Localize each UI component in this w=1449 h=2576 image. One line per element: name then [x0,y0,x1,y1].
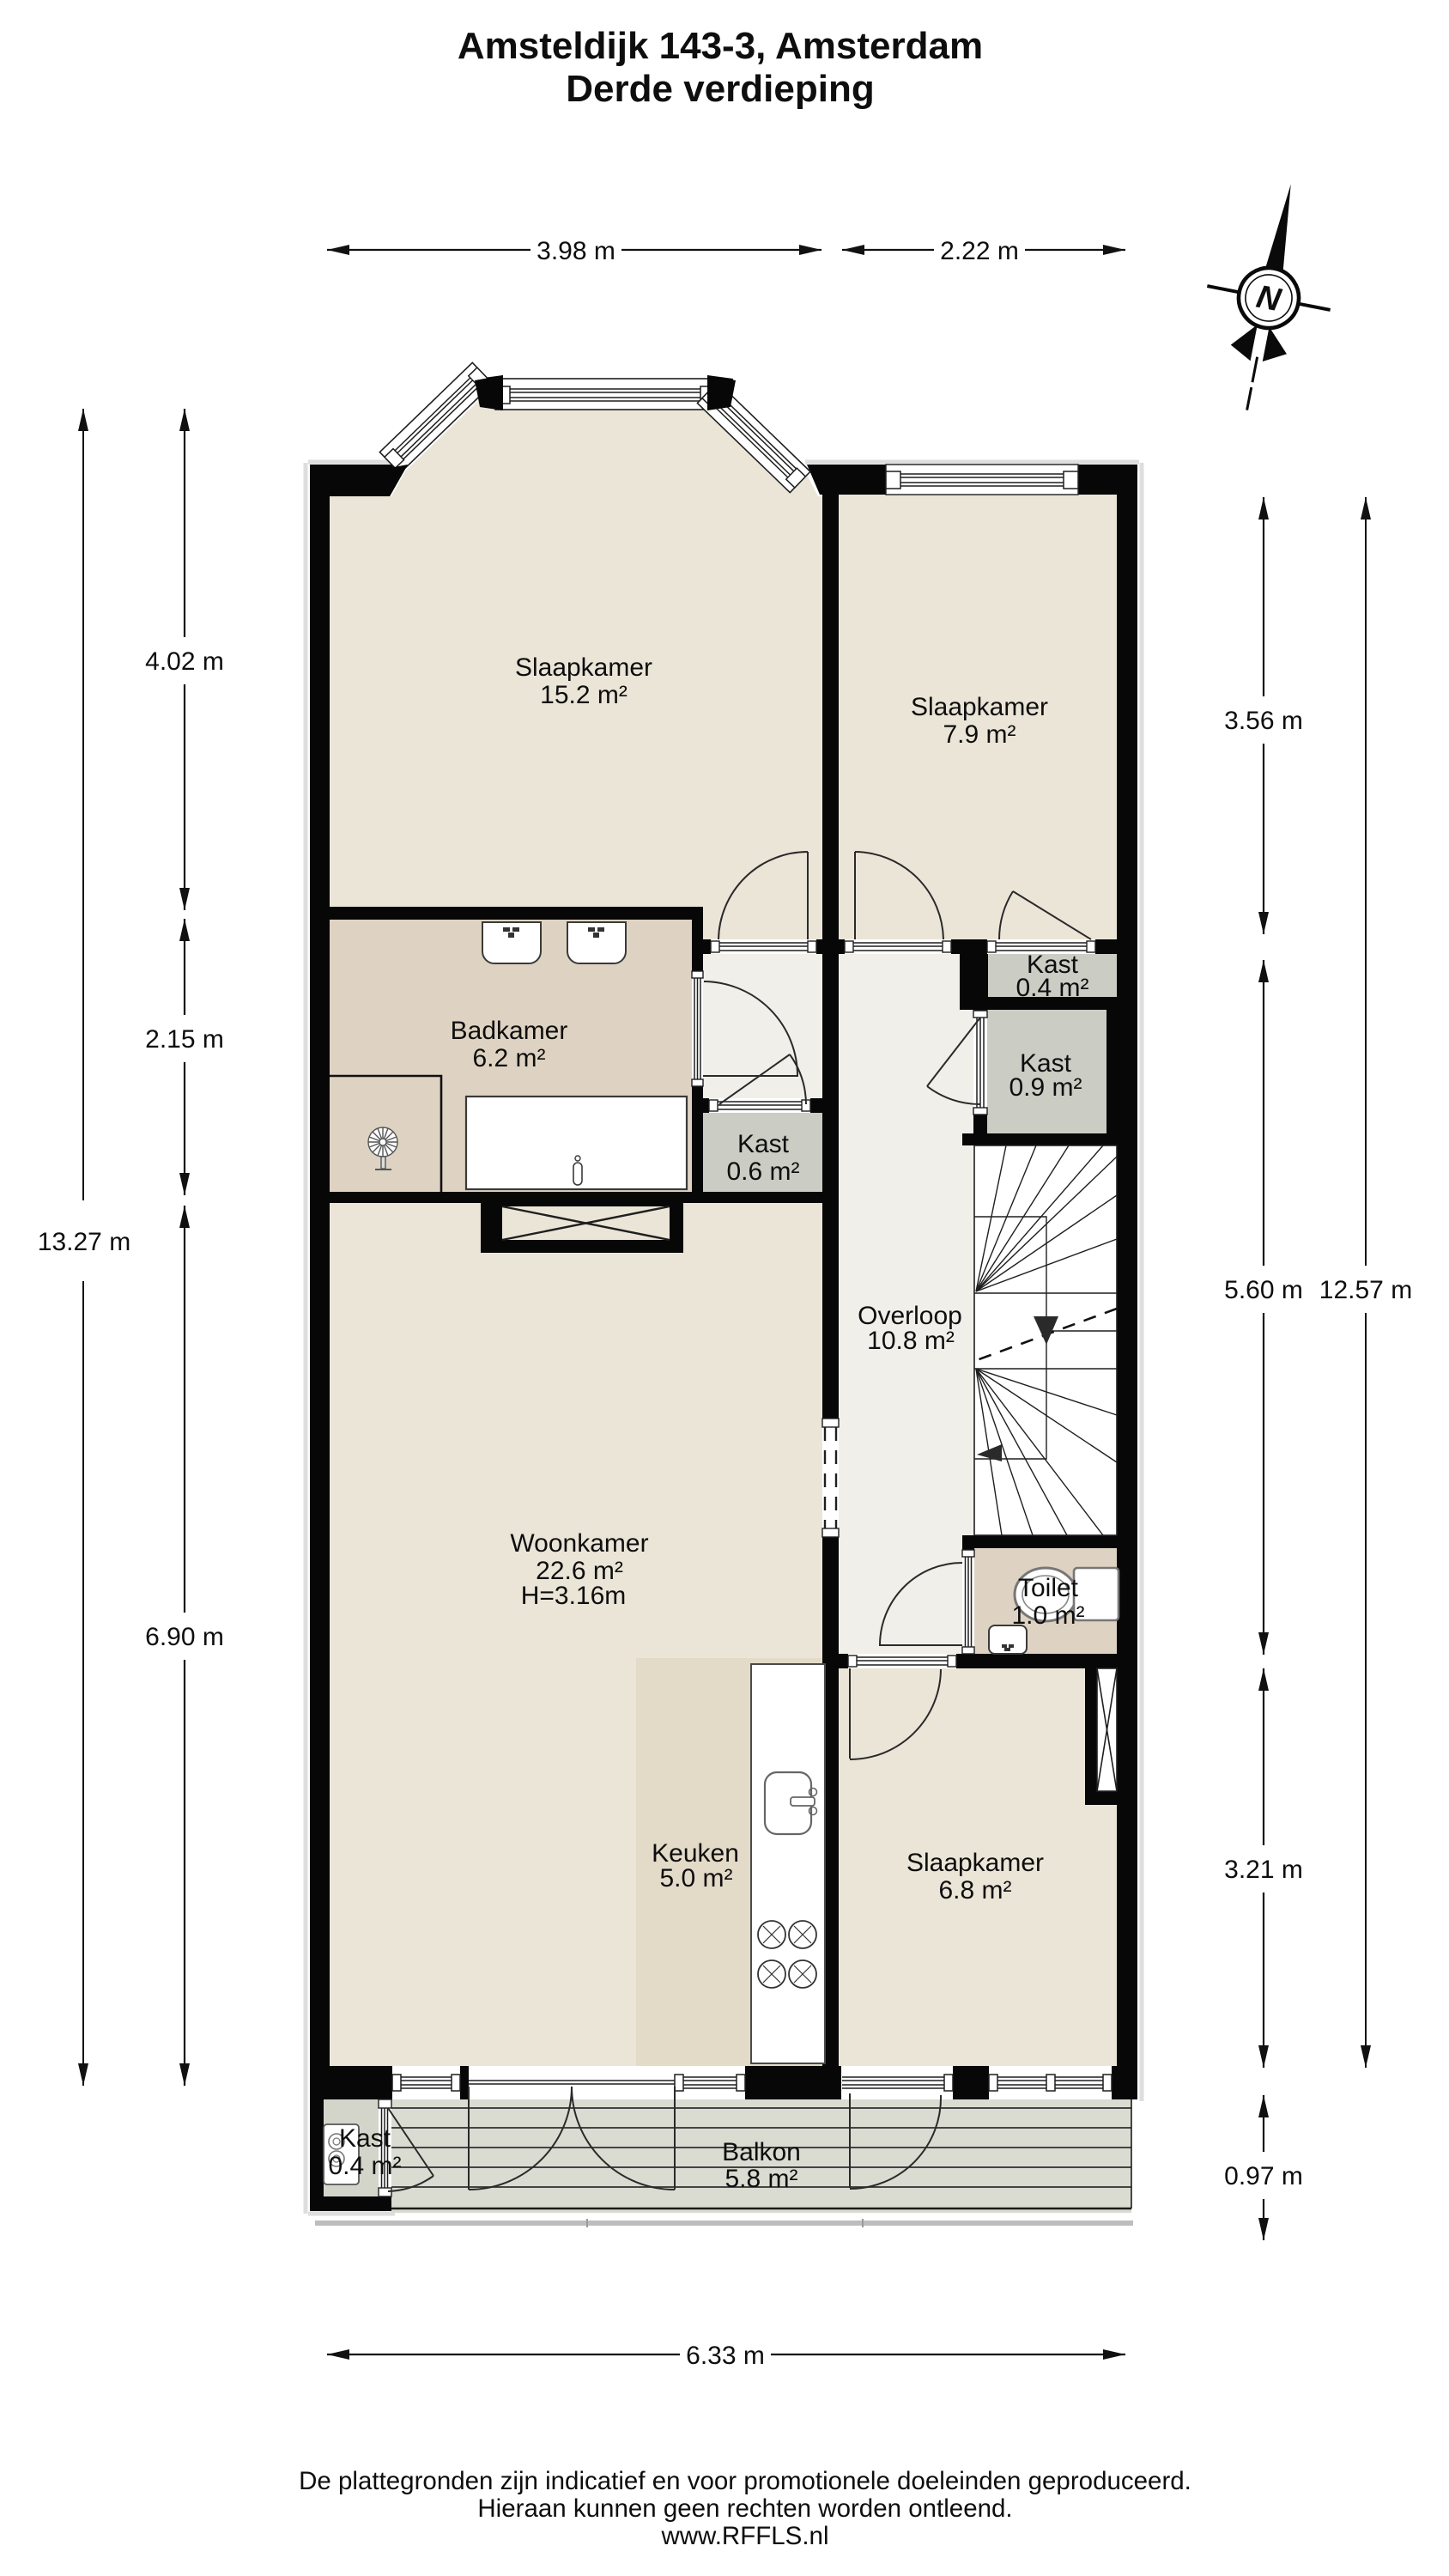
svg-text:Badkamer: Badkamer [451,1017,568,1045]
svg-text:6.90 m: 6.90 m [145,1623,224,1651]
svg-text:0.4 m²: 0.4 m² [1016,974,1088,1002]
svg-text:2.15 m: 2.15 m [145,1025,224,1054]
svg-text:10.8 m²: 10.8 m² [867,1327,955,1355]
svg-text:0.97 m: 0.97 m [1224,2162,1303,2190]
svg-text:0.6 m²: 0.6 m² [726,1157,799,1186]
svg-text:Toilet: Toilet [1018,1574,1079,1602]
svg-text:Hieraan kunnen geen rechten wo: Hieraan kunnen geen rechten worden ontle… [477,2494,1012,2523]
svg-text:15.2 m²: 15.2 m² [540,681,627,709]
svg-text:5.60 m: 5.60 m [1224,1276,1303,1304]
svg-text:Slaapkamer: Slaapkamer [515,653,652,682]
svg-text:Slaapkamer: Slaapkamer [911,693,1048,721]
svg-text:1.0 m²: 1.0 m² [1011,1601,1084,1630]
svg-text:6.2 m²: 6.2 m² [472,1044,545,1072]
svg-text:5.0 m²: 5.0 m² [659,1864,732,1893]
svg-text:7.9 m²: 7.9 m² [943,720,1016,749]
svg-text:5.8 m²: 5.8 m² [724,2165,797,2193]
svg-text:4.02 m: 4.02 m [145,647,224,676]
svg-text:Derde verdieping: Derde verdieping [566,68,874,110]
svg-text:3.21 m: 3.21 m [1224,1856,1303,1884]
svg-text:3.56 m: 3.56 m [1224,707,1303,735]
svg-text:6.33 m: 6.33 m [686,2342,765,2370]
svg-text:2.22 m: 2.22 m [940,237,1019,265]
svg-text:Slaapkamer: Slaapkamer [906,1849,1044,1877]
svg-text:Balkon: Balkon [722,2138,801,2166]
svg-text:12.57 m: 12.57 m [1319,1276,1412,1304]
svg-text:3.98 m: 3.98 m [537,237,615,265]
svg-text:6.8 m²: 6.8 m² [938,1876,1011,1905]
svg-text:Amsteldijk 143-3, Amsterdam: Amsteldijk 143-3, Amsterdam [458,25,983,67]
svg-text:Woonkamer: Woonkamer [510,1529,648,1558]
svg-text:H=3.16m: H=3.16m [521,1582,627,1610]
svg-text:Kast: Kast [737,1130,790,1158]
svg-text:0.9 m²: 0.9 m² [1009,1073,1082,1102]
svg-text:0.4 m²: 0.4 m² [328,2152,401,2180]
svg-text:Kast: Kast [339,2124,391,2153]
svg-text:www.RFFLS.nl: www.RFFLS.nl [660,2522,828,2550]
svg-text:13.27 m: 13.27 m [38,1228,130,1256]
svg-text:De plattegronden zijn indicati: De plattegronden zijn indicatief en voor… [299,2467,1191,2495]
